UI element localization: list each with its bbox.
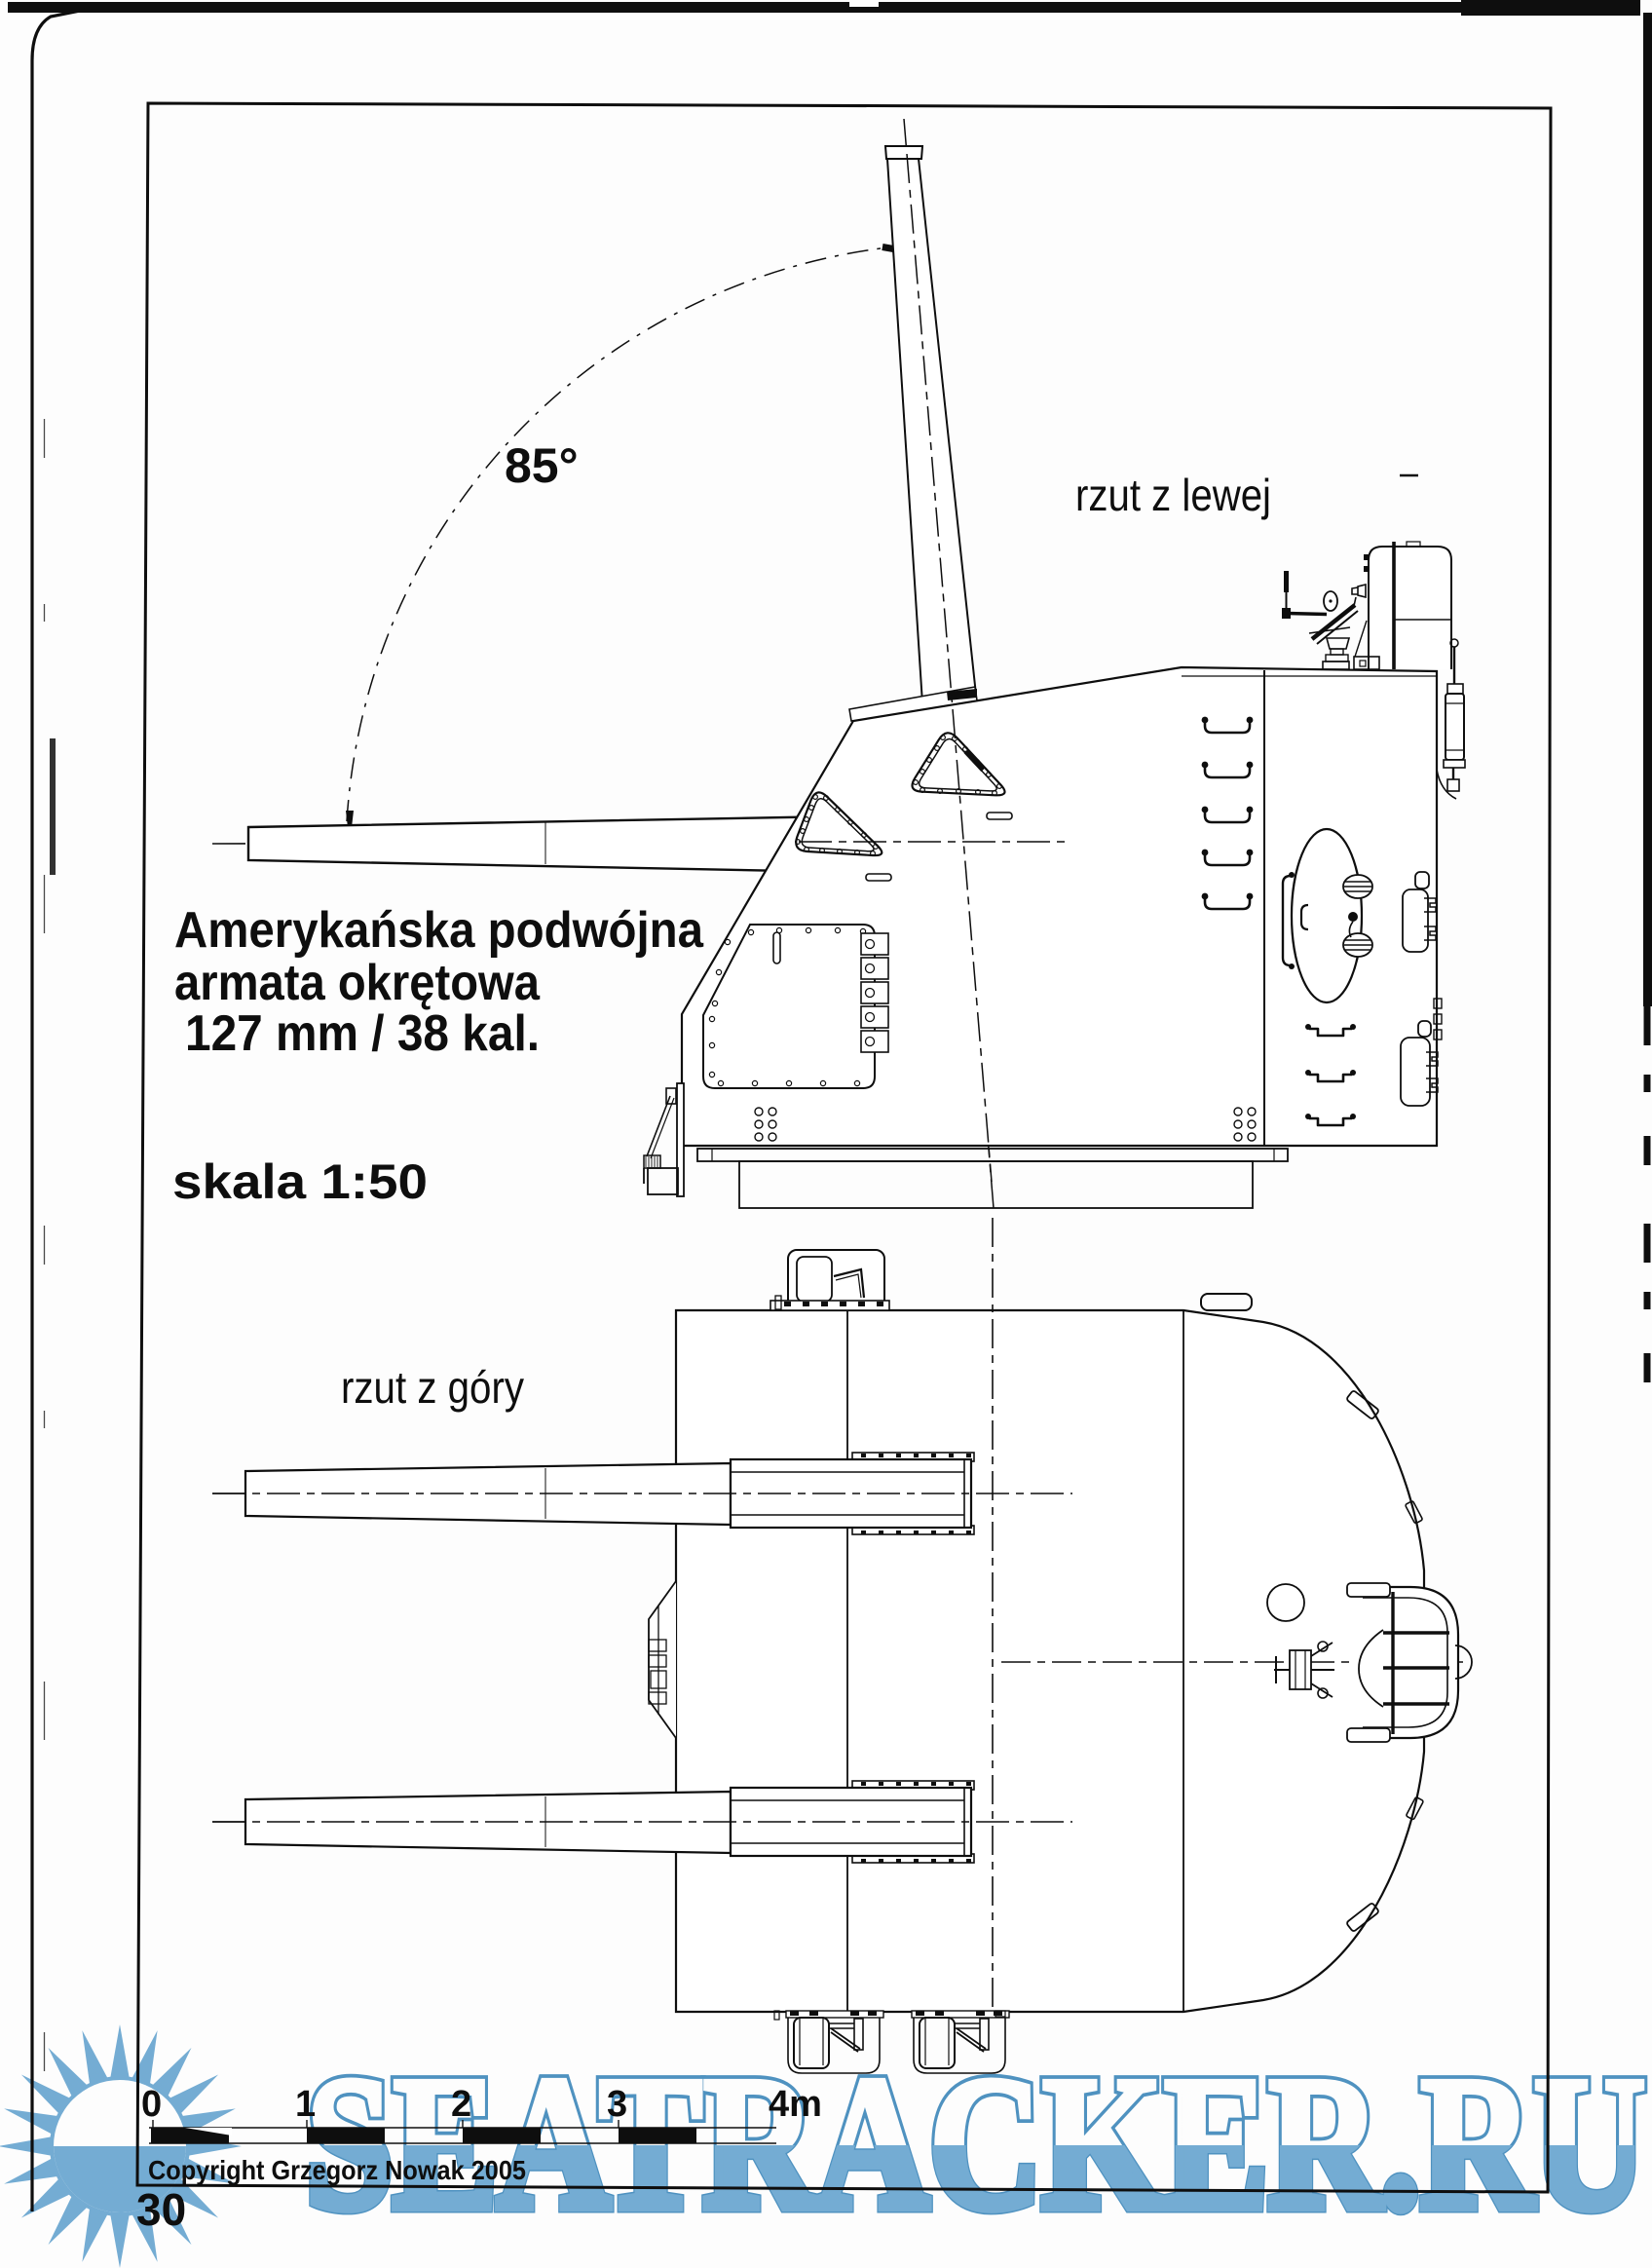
svg-text:30: 30 bbox=[136, 2184, 186, 2235]
svg-text:127 mm / 38 kal.: 127 mm / 38 kal. bbox=[185, 1005, 540, 1062]
svg-text:rzut z góry: rzut z góry bbox=[341, 1362, 524, 1413]
svg-text:85°: 85° bbox=[505, 438, 579, 493]
svg-text:4m: 4m bbox=[769, 2084, 822, 2125]
svg-text:skala 1:50: skala 1:50 bbox=[172, 1154, 428, 1209]
svg-text:1: 1 bbox=[295, 2084, 316, 2125]
svg-text:rzut z lewej: rzut z lewej bbox=[1075, 470, 1271, 520]
svg-text:2: 2 bbox=[451, 2084, 471, 2125]
svg-text:Amerykańska podwójna: Amerykańska podwójna bbox=[174, 902, 704, 959]
svg-text:Copyright Grzegorz Nowak 2005: Copyright Grzegorz Nowak 2005 bbox=[148, 2155, 526, 2185]
svg-text:armata okrętowa: armata okrętowa bbox=[174, 955, 541, 1011]
svg-text:3: 3 bbox=[607, 2084, 627, 2125]
svg-text:0: 0 bbox=[141, 2084, 162, 2125]
